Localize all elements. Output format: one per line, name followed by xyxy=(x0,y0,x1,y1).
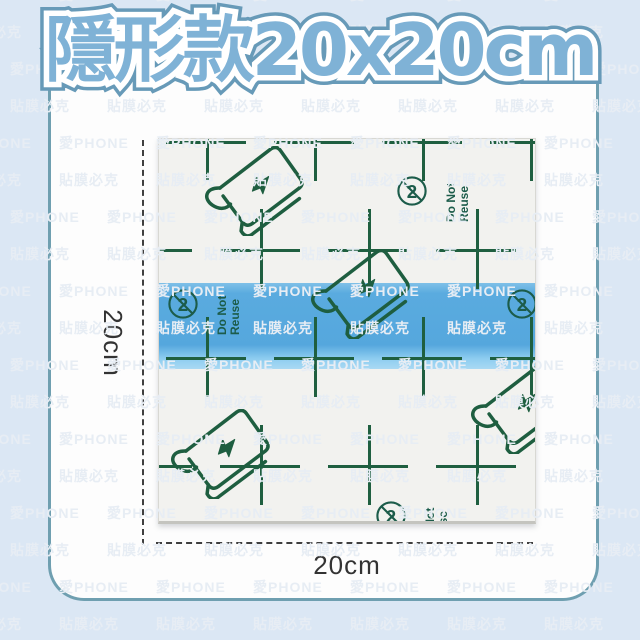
bottom-dimension-line xyxy=(156,542,533,544)
peel-film-icon xyxy=(469,364,536,454)
watermark-text: 貼膜必克 xyxy=(544,615,604,634)
watermark-text: 貼膜必克 xyxy=(59,615,119,634)
do-not-reuse-symbol-icon: 2 xyxy=(395,174,429,208)
bottom-dimension-label: 20cm xyxy=(302,550,392,581)
watermark-text: 愛PHONE xyxy=(592,504,640,523)
do-not-reuse-text: Reuse xyxy=(437,487,450,524)
watermark-text: 貼膜必克 xyxy=(592,541,640,560)
page-title: 隱形款20x20cm 隱形款20x20cm 隱形款20x20cm xyxy=(0,2,640,102)
do-not-reuse-symbol-icon: 2 xyxy=(166,287,200,321)
peel-film-icon xyxy=(203,146,323,236)
film-product-image: 2 Do NotReuse 2 Do NotReuse 2 Do NotReus… xyxy=(158,138,536,524)
do-not-reuse-text: Reuse xyxy=(458,162,471,222)
watermark-text: 愛PHONE xyxy=(0,134,32,153)
watermark-text: 貼膜必克 xyxy=(592,245,640,264)
watermark-text: 愛PHONE xyxy=(592,356,640,375)
do-not-reuse-icon: 2 Do NotReuse xyxy=(166,287,244,327)
watermark-text: 貼膜必克 xyxy=(253,615,313,634)
page-title-text: 隱形款20x20cm xyxy=(0,2,640,98)
do-not-reuse-icon: 2 Do NotReuse xyxy=(395,174,473,214)
do-not-reuse-icon: 2 Do NotReuse xyxy=(374,499,452,524)
do-not-reuse-symbol-icon: 2 xyxy=(505,287,536,321)
do-not-reuse-text: Reuse xyxy=(229,275,242,335)
watermark-text: 貼膜必克 xyxy=(447,615,507,634)
watermark-text: 愛PHONE xyxy=(0,430,32,449)
watermark-text: 貼膜必克 xyxy=(156,615,216,634)
watermark-text: 貼膜必克 xyxy=(0,467,22,486)
watermark-text: 貼膜必克 xyxy=(0,171,22,190)
left-dimension-line xyxy=(142,140,144,545)
watermark-text: 貼膜必克 xyxy=(350,615,410,634)
watermark-text: 愛PHONE xyxy=(0,282,32,301)
do-not-reuse-symbol-icon: 2 xyxy=(374,499,408,524)
peel-film-icon xyxy=(169,409,289,499)
product-banner: 2 Do NotReuse 2 Do NotReuse 2 Do NotReus… xyxy=(0,0,640,640)
left-dimension-label: 20cm xyxy=(100,299,128,387)
peel-film-icon xyxy=(309,249,429,339)
watermark-text: 貼膜必克 xyxy=(0,319,22,338)
watermark-text: 愛PHONE xyxy=(592,208,640,227)
watermark-text: 貼膜必克 xyxy=(0,615,22,634)
do-not-reuse-icon: 2 Do NotReuse xyxy=(505,287,536,327)
watermark-text: 愛PHONE xyxy=(0,578,32,597)
watermark-text: 貼膜必克 xyxy=(592,393,640,412)
